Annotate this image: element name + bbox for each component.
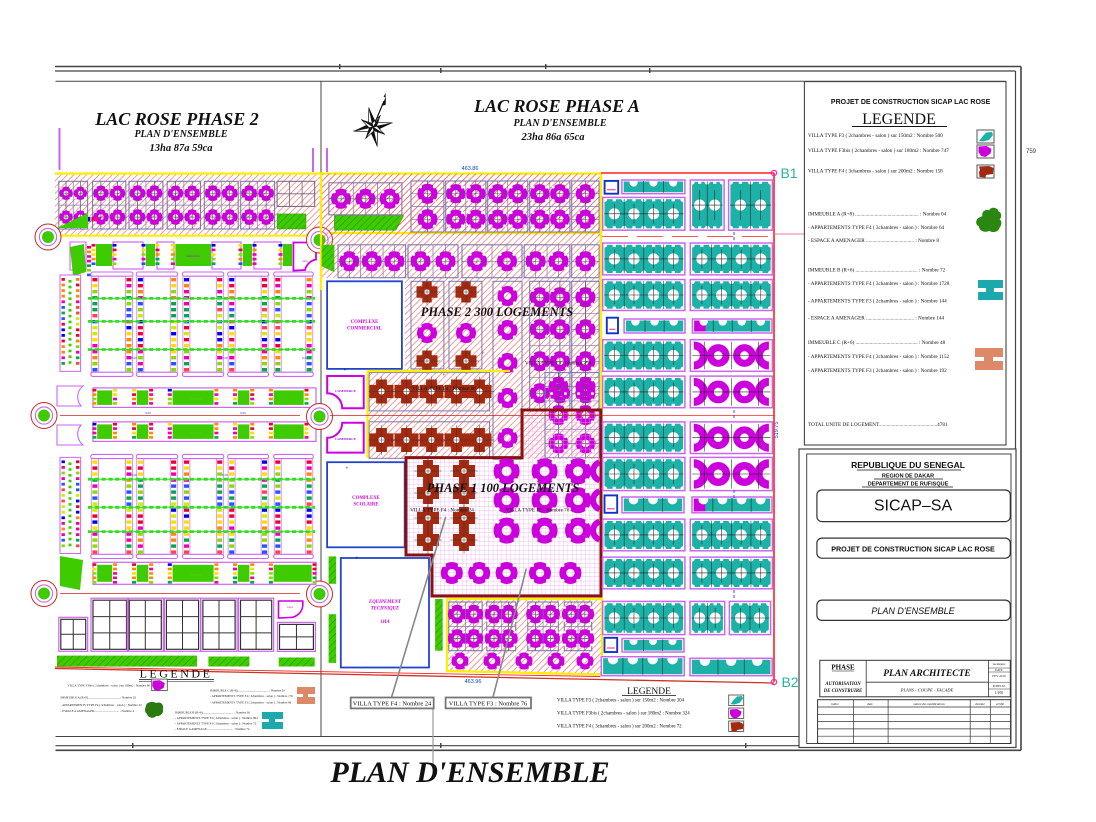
svg-text:- ESPACE A AMENAGER ..........: - ESPACE A AMENAGER ....................… [808,316,945,322]
svg-text:8.00: 8.00 [222,356,228,360]
svg-text:VILLA TYPE F3 : Nombre 76: VILLA TYPE F3 : Nombre 76 [449,701,528,708]
svg-text:- APPARTEMENTS TYPE F4 ( 3cham: - APPARTEMENTS TYPE F4 ( 3chambres - sal… [808,353,950,360]
svg-text:PLAN D'ENSEMBLE: PLAN D'ENSEMBLE [513,118,606,129]
svg-text:13ha 87a 59ca: 13ha 87a 59ca [150,143,213,154]
svg-text:- ESPACE A AMENAGER ..........: - ESPACE A AMENAGER ....................… [808,238,939,244]
svg-text:- APPARTEMENTS TYPE F3 ( 2cham: - APPARTEMENTS TYPE F3 ( 2chambres - sal… [175,722,257,726]
svg-text:DEPARTEMENT DE RUFISQUE: DEPARTEMENT DE RUFISQUE [868,482,949,488]
svg-text:LAC ROSE PHASE 2: LAC ROSE PHASE 2 [94,109,259,129]
svg-text:- ESPACE A AMENAGE............: - ESPACE A AMENAGE......................… [175,727,250,731]
svg-text:xxxx: xxxx [287,605,294,609]
svg-text:xxxxxxx: xxxxxxx [190,431,202,435]
svg-text:VILLA TYPE F4 : Nombre 24: VILLA TYPE F4 : Nombre 24 [410,508,474,514]
svg-text:VILLA TYPE F4 : Nombre 86: VILLA TYPE F4 : Nombre 86 [412,386,476,392]
svg-text:xxxx: xxxx [302,260,308,263]
svg-text:PLAN D'ENSEMBLE: PLAN D'ENSEMBLE [871,606,955,616]
svg-text:xxxxxxxx: xxxxxxxx [186,254,200,258]
svg-text:- APPARTEMENTS TYPE F4 ( 3cham: - APPARTEMENTS TYPE F4 ( 3chambres - sal… [175,716,258,720]
svg-text:1HA: 1HA [380,620,389,625]
svg-text:SCOLAIRE: SCOLAIRE [353,503,378,508]
svg-text:PLAN D'ENSEMBLE: PLAN D'ENSEMBLE [134,129,227,140]
svg-text:vérifié: vérifié [996,702,1005,706]
svg-text:23ha 86a 65ca: 23ha 86a 65ca [521,132,585,143]
svg-text:8.00: 8.00 [131,356,137,360]
svg-text:PROJET DE CONSTRUCTION SICA: PROJET DE CONSTRUCTION SICAP LAC ROSE [831,99,991,106]
svg-text:8.00: 8.00 [302,356,308,360]
svg-text:VILLA TYPE F3bis ( 2chambres -: VILLA TYPE F3bis ( 2chambres - salon ) s… [808,147,949,154]
svg-text:COMMERCE: COMMERCE [335,389,357,393]
svg-text:LAC ROSE PHASE A: LAC ROSE PHASE A [473,96,640,116]
svg-text:IMMEUBLE A (R+8)..............: IMMEUBLE A (R+8)........................… [61,696,137,700]
svg-text:- APPARTEMENTS TYPE F4 ( 3cham: - APPARTEMENTS TYPE F4 ( 3chambres - sal… [61,703,143,707]
svg-text:- APPARTEMENTS TYPE F3 ( 2cham: - APPARTEMENTS TYPE F3 ( 2chambres - sal… [210,701,292,705]
svg-text:- APPARTEMENTS TYPE F4 ( 3cham: - APPARTEMENTS TYPE F4 ( 3chambres - sal… [210,694,293,698]
svg-text:8.00: 8.00 [145,411,151,415]
svg-text:463.86: 463.86 [462,166,479,172]
svg-text:xxxxxxx: xxxxxxx [190,397,202,401]
svg-text:VILLA TYPE F3 ( 2chambres - sa: VILLA TYPE F3 ( 2chambres - salon ) sur … [557,699,685,704]
svg-text:DATE: DATE [995,669,1002,672]
svg-text:VILLA TYPE F4 : Nombre 24: VILLA TYPE F4 : Nombre 24 [353,701,432,708]
svg-text:nature des modifications: nature des modifications [913,702,945,706]
svg-text:PHASE 2 300 LOGEMENTS: PHASE 2 300 LOGEMENTS [421,305,574,319]
svg-text:VILLA TYPE F3 : Nombre 76: VILLA TYPE F3 : Nombre 76 [506,508,570,514]
svg-text:B1: B1 [780,165,797,181]
svg-text:VILLA TYPE F3 : Nombre 296: VILLA TYPE F3 : Nombre 296 [525,361,592,367]
svg-text:ECHELLE: ECHELLE [993,685,1006,688]
svg-text:VILLA TYPE F3bis ( 2chambres -: VILLA TYPE F3bis ( 2chambres - salon ) s… [67,684,150,688]
svg-text:IMMEUBLE C (R+6) .............: IMMEUBLE C (R+6) .......................… [808,339,946,346]
svg-text:- APPARTEMENTS TYPE F4 ( 3cham: - APPARTEMENTS TYPE F4 ( 3chambres - sal… [808,224,945,231]
svg-text:SICAP–SA: SICAP–SA [874,498,953,515]
svg-text:PLAN ARCHITECTE: PLAN ARCHITECTE [883,669,971,679]
svg-text:IMMEUBLE B (R+6) .............: IMMEUBLE B (R+6) .......................… [808,266,946,273]
svg-text:- ESPACE A AMENAGER...........: - ESPACE A AMENAGER.....................… [61,709,135,713]
svg-text:8.00: 8.00 [131,473,137,477]
svg-text:REPUBLIQUE DU SENEGAL: REPUBLIQUE DU SENEGAL [851,460,965,470]
svg-text:vue majeure: vue majeure [993,663,1007,666]
svg-text:AUTORISATION: AUTORISATION [824,682,861,687]
svg-text:VILLA TYPE F3 ( 2chambres - sa: VILLA TYPE F3 ( 2chambres - salon ) sur … [808,132,943,139]
svg-text:FEV 2019: FEV 2019 [992,674,1006,678]
svg-text:COMPLEXE: COMPLEXE [352,496,380,501]
svg-text:date: date [867,702,873,706]
svg-text:indice: indice [831,702,839,706]
svg-text:8.00: 8.00 [240,411,246,415]
svg-text:COMMERCIAL: COMMERCIAL [347,327,382,332]
svg-text:TOTAL UNITE DE LOGEMENT.......: TOTAL UNITE DE LOGEMENT.................… [808,422,948,428]
svg-text:759: 759 [1026,149,1037,155]
svg-text:COMPLEXE: COMPLEXE [351,320,379,325]
svg-text:- APPARTEMENTS TYPE F3 ( 2cham: - APPARTEMENTS TYPE F3 ( 2chambres - sal… [808,367,947,374]
svg-text:IMMEUBLE C (R+6)..............: IMMEUBLE C (R+6)........................… [210,689,285,693]
svg-text:- APPARTEMENTS TYPE F3 ( 2cham: - APPARTEMENTS TYPE F3 ( 2chambres - sal… [808,298,947,305]
svg-text:8.00: 8.00 [222,473,228,477]
svg-text:COMMERCE: COMMERCE [335,437,357,441]
svg-text:PLAN D'ENSEMBLE: PLAN D'ENSEMBLE [329,756,609,789]
svg-text:PHASE: PHASE [831,664,855,672]
svg-text:VILLA TYPE F4 ( 3chambres - sa: VILLA TYPE F4 ( 3chambres - salon ) sur … [557,725,682,730]
svg-text:xxxxxxx: xxxxxxx [190,572,202,576]
svg-text:- APPARTEMENTS TYPE F4 ( 3cham: - APPARTEMENTS TYPE F4 ( 3chambres - sal… [808,280,950,287]
svg-text:PLANS - COUPE - FACADE: PLANS - COUPE - FACADE [900,688,954,693]
svg-text:463.96: 463.96 [465,679,482,685]
svg-text:1/100: 1/100 [995,691,1003,695]
svg-text:IMMEUBLE B (R+6)..............: IMMEUBLE B (R+6)........................… [175,711,250,715]
svg-text:LEGENDE: LEGENDE [862,111,936,128]
svg-text:IMMEUBLE A (R+8) .............: IMMEUBLE A (R+8) .......................… [808,211,947,218]
svg-text:dessiné: dessiné [975,702,985,706]
svg-text:LEGENDE: LEGENDE [140,667,213,681]
svg-text:B2: B2 [781,674,798,690]
svg-text:VILLA TYPE F3bis ( 2chambres -: VILLA TYPE F3bis ( 2chambres - salon ) s… [557,712,690,717]
svg-text:REGION DE DAKAR: REGION DE DAKAR [882,474,934,480]
svg-text:PHASE 1 100 LOGEMENTS: PHASE 1 100 LOGEMENTS [427,481,580,495]
svg-text:EQUIPEMENT: EQUIPEMENT [368,600,402,605]
svg-text:519.75: 519.75 [774,422,780,439]
svg-text:TECHNIQUE: TECHNIQUE [371,607,400,612]
svg-text:DE CONSTRUIRE: DE CONSTRUIRE [823,689,863,694]
svg-text:VILLA TYPE F4 ( 3chambres - sa: VILLA TYPE F4 ( 3chambres - salon ) sur … [808,168,943,175]
svg-text:PROJET DE CONSTRUCTION SICA: PROJET DE CONSTRUCTION SICAP LAC ROSE [831,545,995,554]
